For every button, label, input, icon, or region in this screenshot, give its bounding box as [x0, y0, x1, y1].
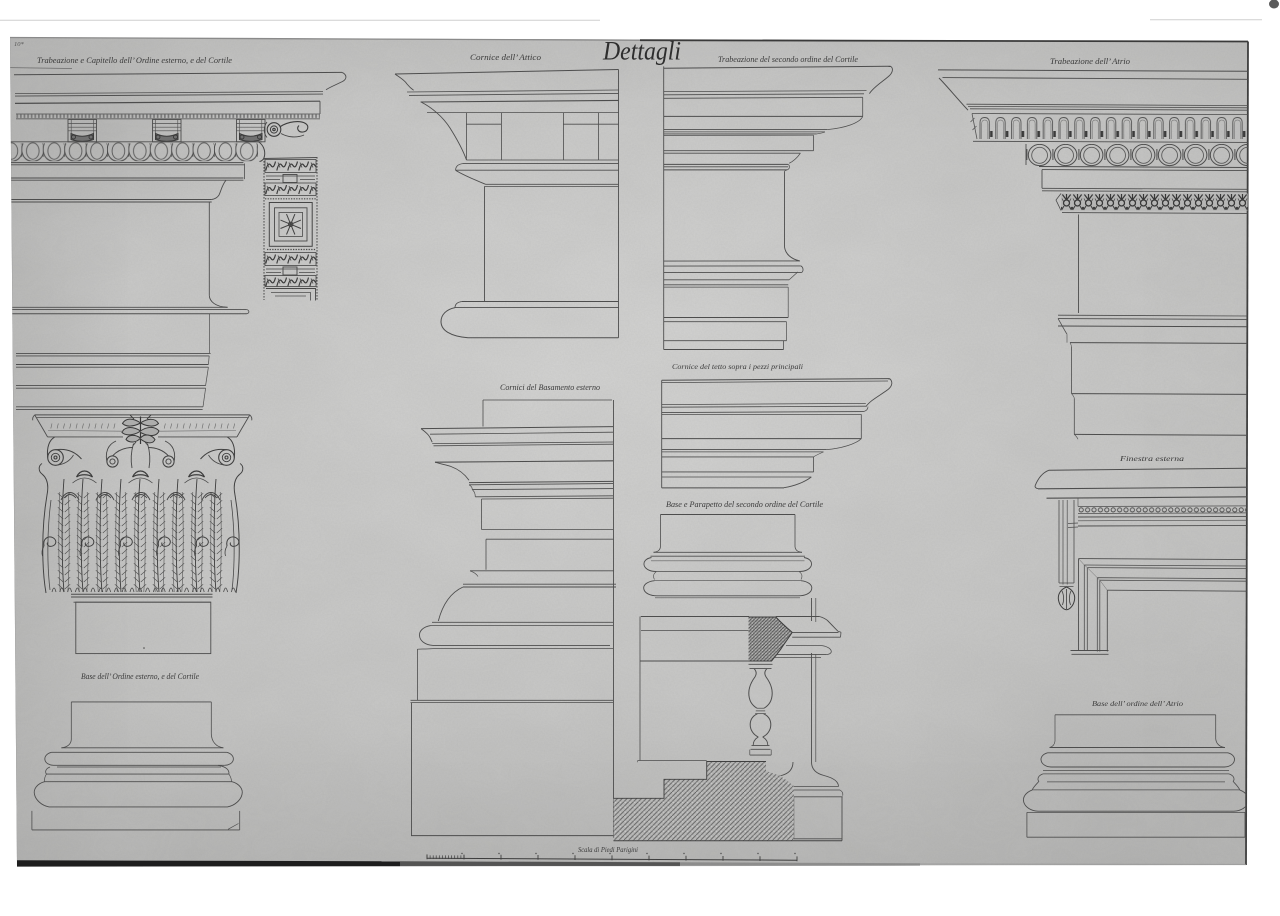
svg-text:10*: 10* — [14, 41, 25, 48]
svg-text:Cornice del tetto sopra i pezz: Cornice del tetto sopra i pezzi principa… — [672, 362, 803, 371]
svg-text:Trabeazione dell’ Atrio: Trabeazione dell’ Atrio — [1050, 57, 1130, 66]
svg-text:Base dell’ Ordine esterno, e d: Base dell’ Ordine esterno, e del Cortile — [81, 672, 199, 681]
svg-text:Base e Parapetto del secondo o: Base e Parapetto del secondo ordine del … — [666, 500, 823, 509]
svg-text:Trabeazione del secondo ordine: Trabeazione del secondo ordine del Corti… — [718, 55, 858, 64]
svg-text:Scala di Piedi Parigini: Scala di Piedi Parigini — [578, 846, 638, 854]
svg-text:Dettagli: Dettagli — [602, 37, 681, 66]
svg-text:Cornice dell’ Attico: Cornice dell’ Attico — [470, 52, 541, 62]
svg-text:Finestra esterna: Finestra esterna — [1119, 454, 1184, 463]
svg-text:Cornici del Basamento esterno: Cornici del Basamento esterno — [500, 383, 600, 392]
svg-text:Base dell’ ordine dell’ Atrio: Base dell’ ordine dell’ Atrio — [1092, 699, 1183, 708]
svg-text:Trabeazione e Capitello dell’: Trabeazione e Capitello dell’ Ordine est… — [37, 55, 232, 65]
